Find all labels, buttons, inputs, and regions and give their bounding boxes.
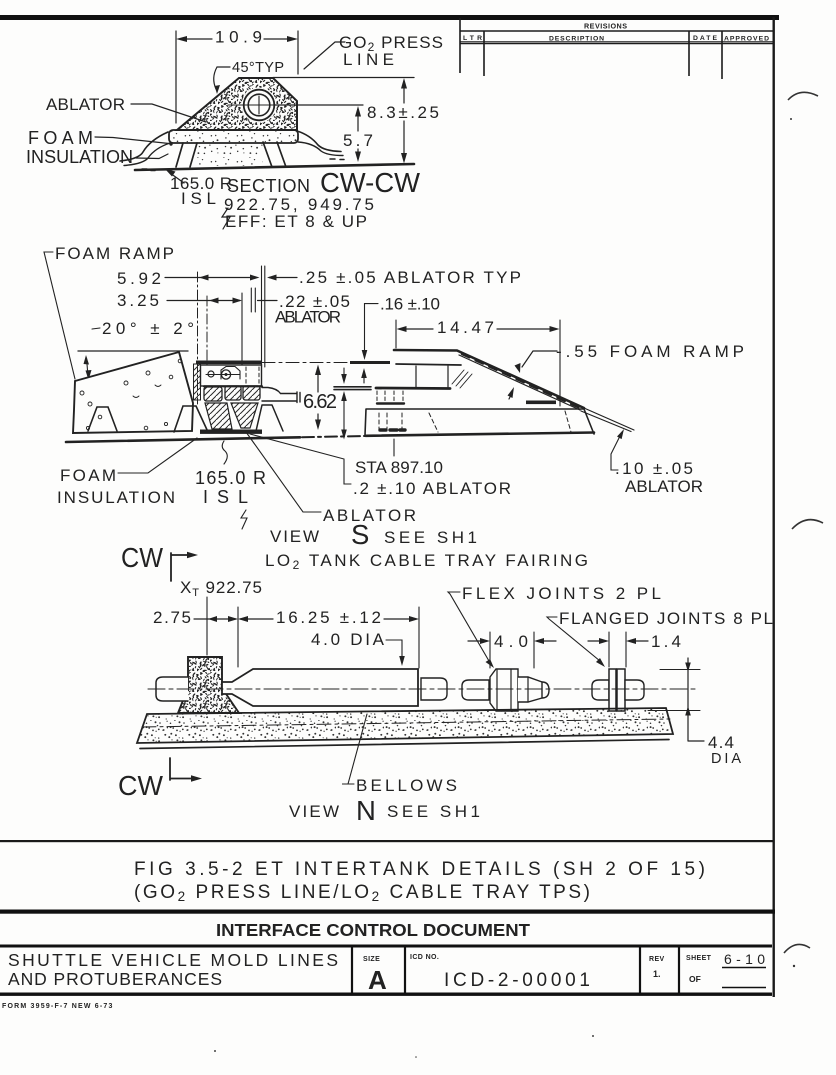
svg-text:INTERFACE CONTROL DOCUMENT: INTERFACE CONTROL DOCUMENT (216, 920, 530, 940)
svg-text:FIG 3.5-2 ET INTERTANK DETAILS: FIG 3.5-2 ET INTERTANK DETAILS (SH 2 OF … (134, 859, 705, 880)
svg-text:5.92: 5.92 (117, 269, 161, 288)
svg-text:LO2 TANK CABLE TRAY FAIRING: LO2 TANK CABLE TRAY FAIRING (265, 551, 588, 572)
svg-text:1.: 1. (653, 969, 661, 979)
svg-text:FOAM: FOAM (60, 466, 116, 485)
svg-text:10.9: 10.9 (215, 28, 262, 47)
svg-text:VIEW: VIEW (289, 802, 339, 821)
svg-text:4.0 DIA: 4.0 DIA (311, 630, 385, 649)
svg-text:SECTION: SECTION (227, 176, 310, 196)
svg-text:8.3±.25: 8.3±.25 (367, 103, 439, 122)
svg-text:XT 922.75: XT 922.75 (180, 578, 262, 599)
svg-text:3.25: 3.25 (117, 291, 159, 310)
svg-text:DESCRIPTION: DESCRIPTION (549, 36, 604, 43)
svg-text:SEE SH1: SEE SH1 (384, 528, 477, 547)
svg-text:-.55 FOAM RAMP: -.55 FOAM RAMP (556, 342, 744, 361)
svg-text:SHEET: SHEET (686, 955, 712, 962)
svg-text:SEE SH1: SEE SH1 (387, 802, 480, 821)
svg-text:ABLATOR: ABLATOR (323, 506, 416, 525)
svg-text:.10 ±.05: .10 ±.05 (615, 459, 693, 478)
svg-text:AND PROTUBERANCES: AND PROTUBERANCES (8, 969, 222, 989)
svg-text:2.75: 2.75 (153, 608, 191, 627)
svg-text:LINE: LINE (343, 50, 394, 69)
svg-text:ABLATOR: ABLATOR (625, 477, 703, 496)
svg-text:SIZE: SIZE (363, 956, 380, 963)
svg-text:REVISIONS: REVISIONS (584, 22, 627, 31)
svg-text:.2 ±.10 ABLATOR: .2 ±.10 ABLATOR (353, 479, 511, 498)
svg-text:FLEX JOINTS 2 PL: FLEX JOINTS 2 PL (462, 584, 661, 603)
svg-text:ISL: ISL (203, 487, 248, 507)
svg-text:CW: CW (121, 542, 163, 573)
svg-text:N: N (356, 795, 376, 826)
svg-text:STA 897.10: STA 897.10 (355, 458, 443, 477)
svg-text:ABLATOR: ABLATOR (46, 95, 125, 114)
svg-text:(GO2 PRESS LINE/LO2 CABLE TRAY: (GO2 PRESS LINE/LO2 CABLE TRAY TPS) (134, 882, 590, 904)
svg-text:EFF: ET 8 & UP: EFF: ET 8 & UP (225, 212, 367, 231)
svg-text:APPROVED: APPROVED (724, 36, 769, 43)
svg-text:ICD NO.: ICD NO. (410, 954, 439, 961)
svg-text:.25 ±.05 ABLATOR TYP: .25 ±.05 ABLATOR TYP (299, 268, 521, 287)
svg-text:ICD-2-00001: ICD-2-00001 (444, 970, 590, 991)
svg-text:VIEW: VIEW (270, 527, 319, 546)
svg-text:16.25 ±.12: 16.25 ±.12 (276, 608, 381, 627)
svg-text:DATE: DATE (693, 35, 717, 42)
svg-text:45°TYP: 45°TYP (232, 60, 284, 76)
svg-text:4.0: 4.0 (494, 632, 528, 651)
svg-text:.16 ±.10: .16 ±.10 (380, 295, 440, 314)
svg-text:165.0 R: 165.0 R (195, 468, 266, 488)
svg-text:FORM 3959-F-7 NEW 6-73: FORM 3959-F-7 NEW 6-73 (2, 1003, 114, 1010)
svg-text:REV: REV (649, 956, 665, 963)
svg-text:FLANGED JOINTS 8 PL: FLANGED JOINTS 8 PL (559, 609, 773, 628)
svg-text:ABLATOR: ABLATOR (275, 308, 341, 327)
svg-text:DIA: DIA (711, 751, 741, 767)
svg-text:1.4: 1.4 (651, 632, 681, 651)
svg-text:6-10: 6-10 (724, 951, 765, 967)
svg-text:5.7: 5.7 (343, 131, 373, 150)
svg-text:LTR: LTR (463, 35, 482, 42)
svg-text:S: S (351, 519, 369, 550)
svg-text:20° ± 2°: 20° ± 2° (102, 319, 194, 338)
svg-text:FOAM: FOAM (28, 128, 93, 148)
svg-text:SHUTTLE VEHICLE MOLD LINES: SHUTTLE VEHICLE MOLD LINES (8, 950, 338, 970)
svg-text:BELLOWS: BELLOWS (356, 776, 457, 795)
svg-text:CW-CW: CW-CW (320, 167, 420, 198)
svg-text:CW: CW (118, 770, 163, 801)
svg-text:INSULATION: INSULATION (26, 147, 133, 167)
svg-text:A: A (368, 965, 387, 995)
svg-text:6.62: 6.62 (303, 391, 337, 413)
svg-text:OF: OF (689, 974, 701, 984)
svg-text:INSULATION: INSULATION (57, 488, 175, 507)
svg-text:FOAM RAMP: FOAM RAMP (55, 244, 174, 263)
svg-text:4.4: 4.4 (708, 733, 734, 752)
svg-text:14.47: 14.47 (437, 318, 494, 337)
